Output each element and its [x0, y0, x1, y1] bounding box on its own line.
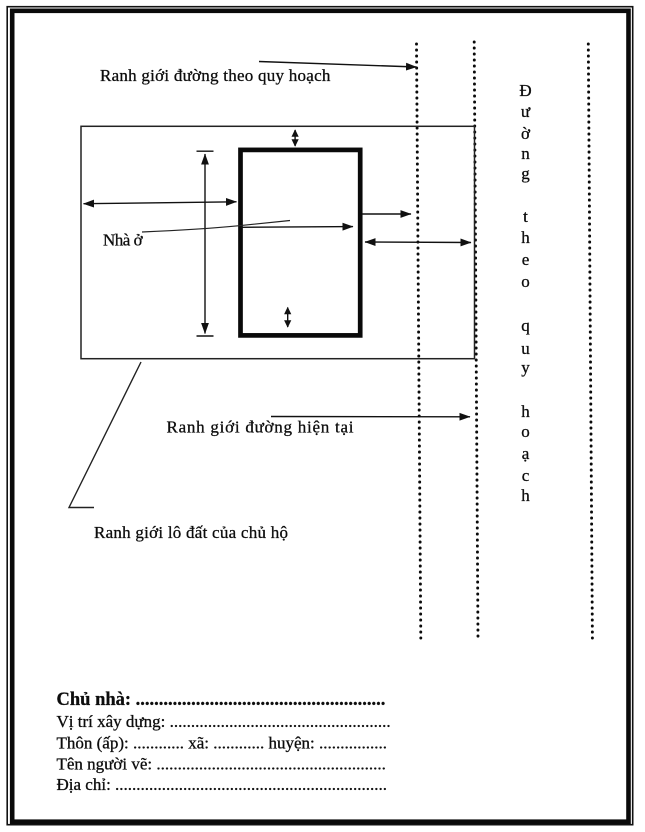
svg-text:Địa chỉ: .....................: Địa chỉ: ...............................… [57, 775, 388, 794]
svg-text:ạ: ạ [522, 444, 530, 463]
svg-text:Nhà ở: Nhà ở [103, 231, 144, 250]
svg-text:t: t [523, 207, 528, 226]
svg-text:o: o [521, 272, 530, 291]
svg-text:ờ: ờ [521, 124, 531, 143]
svg-text:Tên người vẽ: ................: Tên người vẽ: ..........................… [57, 755, 386, 774]
svg-text:g: g [521, 164, 530, 183]
svg-text:h: h [521, 486, 530, 505]
svg-text:u: u [521, 339, 530, 358]
svg-text:o: o [521, 422, 530, 441]
svg-text:Ranh giới lô đất của chủ hộ: Ranh giới lô đất của chủ hộ [94, 523, 288, 542]
svg-text:h: h [521, 228, 530, 247]
svg-text:y: y [521, 358, 530, 377]
svg-text:Ranh giới đường theo quy hoạch: Ranh giới đường theo quy hoạch [100, 66, 331, 85]
svg-text:Thôn (ấp): ............ xã: ..: Thôn (ấp): ............ xã: ............… [57, 734, 388, 753]
svg-text:Đ: Đ [519, 81, 531, 100]
svg-text:q: q [521, 316, 530, 335]
svg-text:h: h [521, 402, 530, 421]
svg-text:e: e [522, 250, 530, 269]
svg-text:c: c [522, 466, 530, 485]
svg-text:Vị trí xây dựng: .............: Vị trí xây dựng: .......................… [57, 712, 391, 731]
svg-text:Chủ nhà: .....................: Chủ nhà: ...............................… [57, 690, 386, 710]
svg-text:ư: ư [521, 102, 531, 121]
svg-text:n: n [521, 144, 530, 163]
svg-text:Ranh giới đường hiện tại: Ranh giới đường hiện tại [167, 418, 355, 437]
